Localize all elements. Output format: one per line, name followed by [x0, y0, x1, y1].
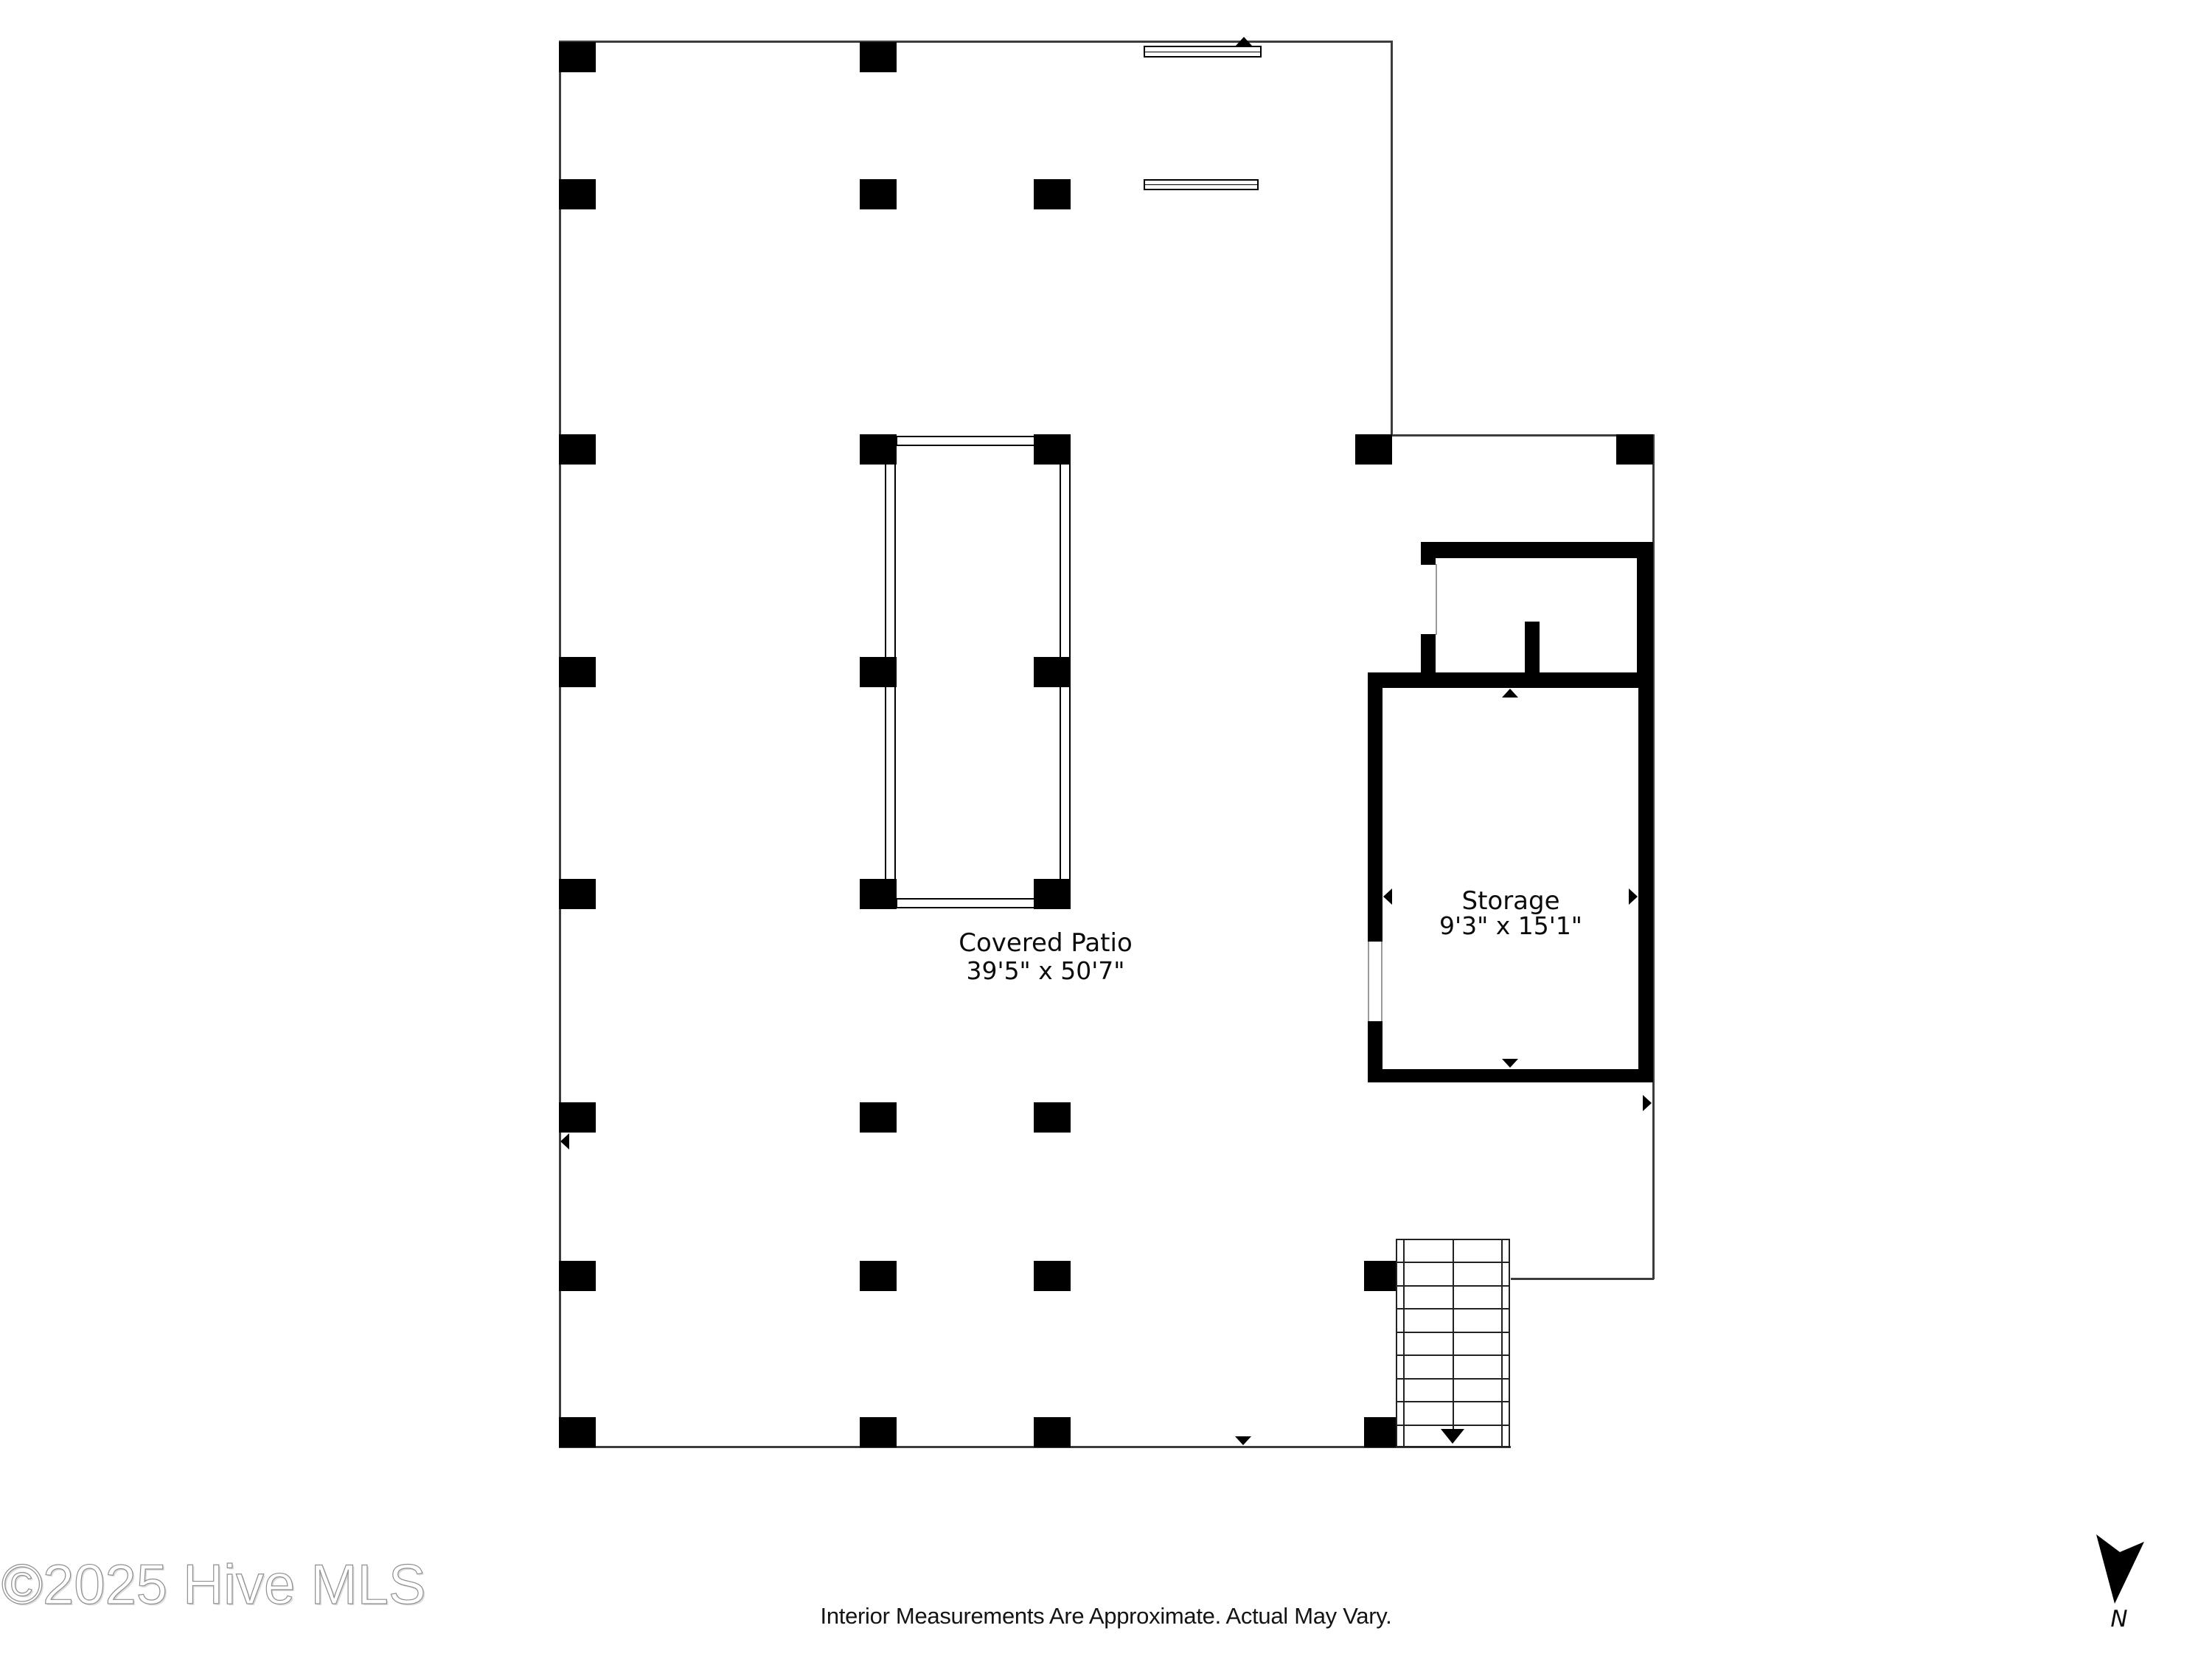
- dimension-arrow: [1441, 1429, 1464, 1444]
- column-pillar: [559, 42, 596, 72]
- plan-geometry: [0, 0, 2212, 1659]
- column-pillar: [1034, 179, 1071, 209]
- column-pillar: [559, 1261, 596, 1291]
- window-edge-line: [1436, 564, 1437, 635]
- wall: [1525, 622, 1540, 673]
- north-arrow-icon: [2093, 1532, 2152, 1606]
- dimension-arrow: [560, 1133, 569, 1150]
- column-pillar: [860, 42, 897, 72]
- wall: [1637, 558, 1653, 676]
- room-label-covered-patio: Covered Patio 39'5" x 50'7": [898, 930, 1193, 984]
- room-label-storage: Storage 9'3" x 15'1": [1363, 888, 1658, 939]
- column-pillar: [1034, 434, 1071, 465]
- dimension-arrow: [1643, 1095, 1652, 1111]
- dimension-arrow: [1502, 1059, 1518, 1068]
- stair-direction-line: [1453, 1240, 1454, 1430]
- wall: [1421, 634, 1436, 673]
- wall: [1368, 672, 1653, 688]
- room-name: Storage: [1363, 888, 1658, 914]
- wall: [1421, 542, 1653, 558]
- mls-watermark: ©2025 Hive MLS: [1, 1553, 426, 1617]
- column-pillar: [1034, 1261, 1071, 1291]
- north-label: N: [2093, 1606, 2146, 1632]
- dimension-arrow: [1236, 37, 1252, 46]
- dimension-arrow: [1502, 689, 1518, 698]
- patio-railing: [896, 436, 1035, 446]
- column-pillar: [1034, 1102, 1071, 1133]
- boundary-line: [559, 41, 561, 1447]
- column-pillar: [860, 1261, 897, 1291]
- wall: [1421, 558, 1436, 565]
- dimension-arrow: [1235, 1436, 1251, 1445]
- floor-plan: Covered Patio 39'5" x 50'7" Storage 9'3"…: [0, 0, 2212, 1659]
- window-edge-line: [1368, 942, 1369, 1021]
- column-pillar: [1034, 1417, 1071, 1447]
- boundary-line: [559, 41, 1392, 43]
- room-dimensions: 39'5" x 50'7": [898, 957, 1193, 984]
- window-edge-line: [1381, 942, 1382, 1021]
- column-pillar: [1616, 434, 1653, 465]
- window-mullion: [1145, 184, 1257, 185]
- wall: [1368, 1069, 1653, 1082]
- column-pillar: [559, 1417, 596, 1447]
- column-pillar: [860, 1417, 897, 1447]
- column-pillar: [860, 657, 897, 687]
- column-pillar: [860, 434, 897, 465]
- wall: [1368, 1021, 1382, 1070]
- column-pillar: [1355, 434, 1392, 465]
- column-pillar: [559, 434, 596, 465]
- column-pillar: [860, 879, 897, 909]
- column-pillar: [559, 657, 596, 687]
- boundary-line: [1391, 434, 1654, 437]
- stair-rail: [1403, 1240, 1405, 1446]
- column-pillar: [1034, 879, 1071, 909]
- window-mullion: [1145, 52, 1260, 52]
- column-pillar: [559, 179, 596, 209]
- room-name: Covered Patio: [898, 930, 1193, 957]
- column-pillar: [860, 1102, 897, 1133]
- column-pillar: [860, 179, 897, 209]
- boundary-line: [1391, 41, 1393, 436]
- north-arrow: N: [2093, 1532, 2152, 1630]
- wall: [1638, 688, 1653, 1070]
- stair-rail: [1501, 1240, 1503, 1446]
- room-dimensions: 9'3" x 15'1": [1363, 914, 1658, 939]
- column-pillar: [559, 879, 596, 909]
- boundary-line: [1511, 1278, 1654, 1280]
- patio-railing: [896, 898, 1035, 908]
- column-pillar: [559, 1102, 596, 1133]
- column-pillar: [1034, 657, 1071, 687]
